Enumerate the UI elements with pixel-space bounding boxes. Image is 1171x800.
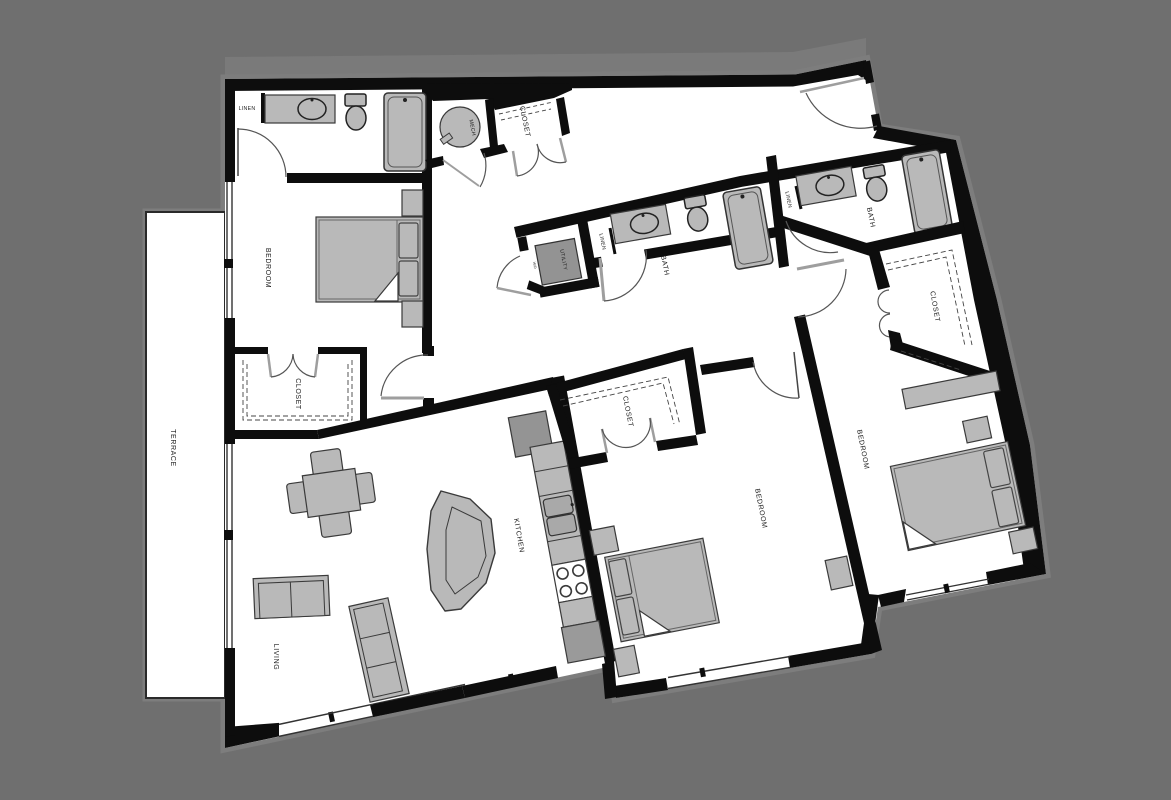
svg-text:LIVING: LIVING [272,644,279,671]
svg-text:BEDROOM: BEDROOM [264,248,271,288]
svg-text:LINEN: LINEN [239,106,256,112]
svg-text:TERRACE: TERRACE [169,429,176,467]
svg-text:CLOSET: CLOSET [294,378,301,410]
